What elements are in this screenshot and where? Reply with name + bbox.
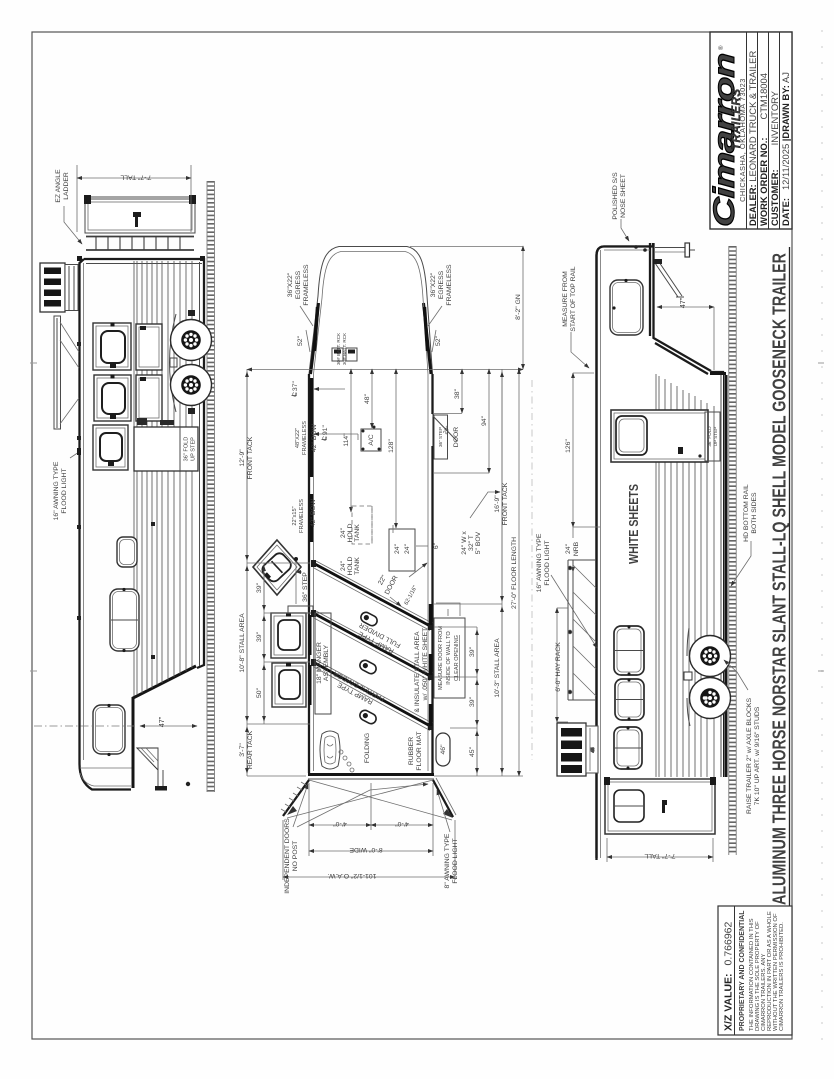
svg-text:8'-2" GN: 8'-2" GN xyxy=(515,294,522,320)
svg-text:8'-0" WIDE: 8'-0" WIDE xyxy=(349,846,383,853)
svg-text:RAISE TRAILER 2" w/ AXLE BLOCK: RAISE TRAILER 2" w/ AXLE BLOCKS xyxy=(746,698,753,814)
svg-text:24": 24" xyxy=(394,543,401,554)
svg-text:®: ® xyxy=(718,45,725,50)
svg-text:39": 39" xyxy=(469,646,476,657)
svg-text:47": 47" xyxy=(157,716,166,727)
svg-text:RUBBER: RUBBER xyxy=(408,737,415,765)
svg-text:FLOOR MAT: FLOOR MAT xyxy=(416,731,423,770)
svg-text:DEALER: LEONARD TRUCK & TRAILE: DEALER: LEONARD TRUCK & TRAILER xyxy=(747,51,758,226)
svg-text:HOLD: HOLD xyxy=(347,523,354,542)
svg-text:A/C: A/C xyxy=(368,434,375,445)
svg-text:DOOR: DOOR xyxy=(453,427,460,447)
svg-text:5" BOV: 5" BOV xyxy=(475,531,482,554)
svg-text:42" BOW: 42" BOW xyxy=(311,423,318,452)
svg-text:TANK: TANK xyxy=(354,557,361,575)
svg-text:EGRESS: EGRESS xyxy=(438,270,445,299)
svg-text:24": 24" xyxy=(340,560,347,571)
svg-text:22"x15": 22"x15" xyxy=(292,506,298,525)
svg-text:24": 24" xyxy=(404,543,411,554)
svg-text:FRAMELESS: FRAMELESS xyxy=(299,499,305,533)
svg-text:36" FOLD: 36" FOLD xyxy=(707,426,712,447)
svg-text:52": 52" xyxy=(297,335,304,346)
svg-text:16'-9": 16'-9" xyxy=(494,495,501,513)
svg-text:START OF TOP RAIL: START OF TOP RAIL xyxy=(570,266,577,332)
svg-text:FLOOD LIGHT: FLOOD LIGHT xyxy=(452,838,459,883)
svg-text:45": 45" xyxy=(469,746,476,757)
svg-text:39": 39" xyxy=(256,582,263,593)
svg-text:7'-7" TALL: 7'-7" TALL xyxy=(120,174,151,181)
svg-text:CHICKASHA, OKLAHOMA 73023: CHICKASHA, OKLAHOMA 73023 xyxy=(738,78,747,202)
svg-text:WHITE SHEETS: WHITE SHEETS xyxy=(627,484,641,564)
svg-text:& INSULATE STALL AREA: & INSULATE STALL AREA xyxy=(414,631,421,713)
svg-text:18" MANGER: 18" MANGER xyxy=(316,642,323,684)
svg-text:46": 46" xyxy=(440,744,447,755)
svg-text:24": 24" xyxy=(340,527,347,538)
svg-text:30# BATT. RCK: 30# BATT. RCK xyxy=(342,332,347,365)
svg-text:7'-7" TALL: 7'-7" TALL xyxy=(644,852,675,859)
svg-text:UP STEP: UP STEP xyxy=(191,437,197,461)
svg-text:16" AWNING TYPE: 16" AWNING TYPE xyxy=(53,461,60,520)
svg-text:POLISHED S/S: POLISHED S/S xyxy=(612,172,619,220)
svg-text:ASSEMBLY: ASSEMBLY xyxy=(323,644,330,681)
svg-text:12'-9": 12'-9" xyxy=(239,449,246,467)
svg-text:48": 48" xyxy=(364,393,371,404)
svg-text:HOLD: HOLD xyxy=(347,556,354,575)
svg-text:w/ .050" WHITE SHEET: w/ .050" WHITE SHEET xyxy=(422,628,429,702)
svg-text:126": 126" xyxy=(565,439,572,453)
svg-text:UP STEP: UP STEP xyxy=(713,427,718,447)
svg-text:WORK ORDER NO.:CTM18004: WORK ORDER NO.:CTM18004 xyxy=(758,73,769,226)
svg-text:3'-7": 3'-7" xyxy=(239,743,246,757)
svg-text:CIMARRON TRAILERS IS PROHIBITE: CIMARRON TRAILERS IS PROHIBITED. xyxy=(779,922,785,1031)
svg-text:52": 52" xyxy=(435,335,442,346)
svg-text:HD BOTTOM RAIL: HD BOTTOM RAIL xyxy=(743,484,750,542)
svg-text:36" STEP: 36" STEP xyxy=(302,572,309,602)
svg-text:DATE:12/11/2025 |DRAWN BY: AJ: DATE:12/11/2025 |DRAWN BY: AJ xyxy=(780,72,791,226)
svg-text:NO POST: NO POST xyxy=(292,841,299,872)
svg-text:CL 37": CL 37" xyxy=(291,381,299,397)
svg-text:FOLDING: FOLDING xyxy=(364,733,371,763)
svg-text:32" T: 32" T xyxy=(468,535,475,551)
svg-text:EZ ANGLE: EZ ANGLE xyxy=(55,169,62,203)
svg-text:FRAMELESS: FRAMELESS xyxy=(303,264,310,306)
svg-text:LADDER: LADDER xyxy=(63,172,70,200)
svg-text:38": 38" xyxy=(454,388,461,399)
svg-text:8" AWNING TYPE: 8" AWNING TYPE xyxy=(444,833,451,888)
svg-text:36"X22": 36"X22" xyxy=(287,272,294,297)
svg-text:FLOOD LIGHT: FLOOD LIGHT xyxy=(544,540,551,585)
svg-text:PROPRIETARY AND CONFIDENTIAL: PROPRIETARY AND CONFIDENTIAL xyxy=(739,910,746,1031)
svg-text:7K 10" UP ART. w/ 9/16" STUDS: 7K 10" UP ART. w/ 9/16" STUDS xyxy=(754,706,761,805)
svg-text:TANK: TANK xyxy=(354,524,361,542)
svg-text:X/Z VALUE:0.766962: X/Z VALUE:0.766962 xyxy=(723,921,735,1031)
svg-text:39": 39" xyxy=(256,631,263,642)
svg-text:FRAMELESS: FRAMELESS xyxy=(302,421,308,455)
svg-text:FRAMELESS: FRAMELESS xyxy=(446,264,453,306)
svg-text:FLOOD LIGHT: FLOOD LIGHT xyxy=(61,468,68,513)
svg-text:EGRESS: EGRESS xyxy=(295,270,302,299)
svg-text:27'-0" FLOOR LENGTH: 27'-0" FLOOR LENGTH xyxy=(511,537,518,609)
svg-text:MEASURE FROM: MEASURE FROM xyxy=(562,271,569,327)
svg-text:24": 24" xyxy=(565,543,572,554)
svg-text:128": 128" xyxy=(388,439,395,453)
svg-text:NOSE SHEET: NOSE SHEET xyxy=(620,174,627,218)
svg-text:6": 6" xyxy=(433,542,440,549)
svg-text:ALUMINUM THREE HORSE NORSTAR S: ALUMINUM THREE HORSE NORSTAR SLANT STALL… xyxy=(769,253,790,905)
svg-text:45: 45 xyxy=(590,747,595,753)
svg-text:4'-0": 4'-0" xyxy=(333,820,347,827)
svg-text:47": 47" xyxy=(678,297,687,308)
svg-text:4'-0": 4'-0" xyxy=(395,820,409,827)
svg-text:50": 50" xyxy=(256,687,263,698)
svg-text:48"X22": 48"X22" xyxy=(295,428,301,448)
svg-text:FRONT TACK: FRONT TACK xyxy=(502,482,509,525)
svg-text:10'-8" STALL AREA: 10'-8" STALL AREA xyxy=(239,613,246,673)
svg-text:BOTH SIDES: BOTH SIDES xyxy=(751,492,758,534)
svg-text:42" BOW: 42" BOW xyxy=(310,498,317,527)
svg-text:30# BATT. RCK: 30# BATT. RCK xyxy=(336,332,341,365)
svg-text:24" W x: 24" W x xyxy=(461,531,468,555)
svg-text:REAR TACK: REAR TACK xyxy=(247,730,254,769)
svg-text:FRONT TACK: FRONT TACK xyxy=(247,436,254,479)
svg-text:MEASURE DOOR FROM: MEASURE DOOR FROM xyxy=(438,626,444,690)
svg-text:INDEPENDENT DOORS: INDEPENDENT DOORS xyxy=(284,818,291,894)
svg-text:NRB: NRB xyxy=(573,541,580,556)
svg-text:36" STEP: 36" STEP xyxy=(438,427,443,447)
svg-text:16" AWNING TYPE: 16" AWNING TYPE xyxy=(536,533,543,592)
svg-text:CLEAR OPENING: CLEAR OPENING xyxy=(454,635,460,681)
svg-text:94": 94" xyxy=(481,415,488,426)
svg-text:6'-0" HAY RACK: 6'-0" HAY RACK xyxy=(555,642,562,692)
svg-text:CL 91": CL 91" xyxy=(321,425,329,441)
svg-text:36" FOLD: 36" FOLD xyxy=(184,437,190,462)
svg-text:101-1/2" O.A.W.: 101-1/2" O.A.W. xyxy=(327,872,376,879)
svg-text:114": 114" xyxy=(343,433,350,447)
svg-text:39": 39" xyxy=(469,696,476,707)
svg-text:10'-3" STALL AREA: 10'-3" STALL AREA xyxy=(494,638,501,698)
svg-text:36"X22": 36"X22" xyxy=(430,272,437,297)
